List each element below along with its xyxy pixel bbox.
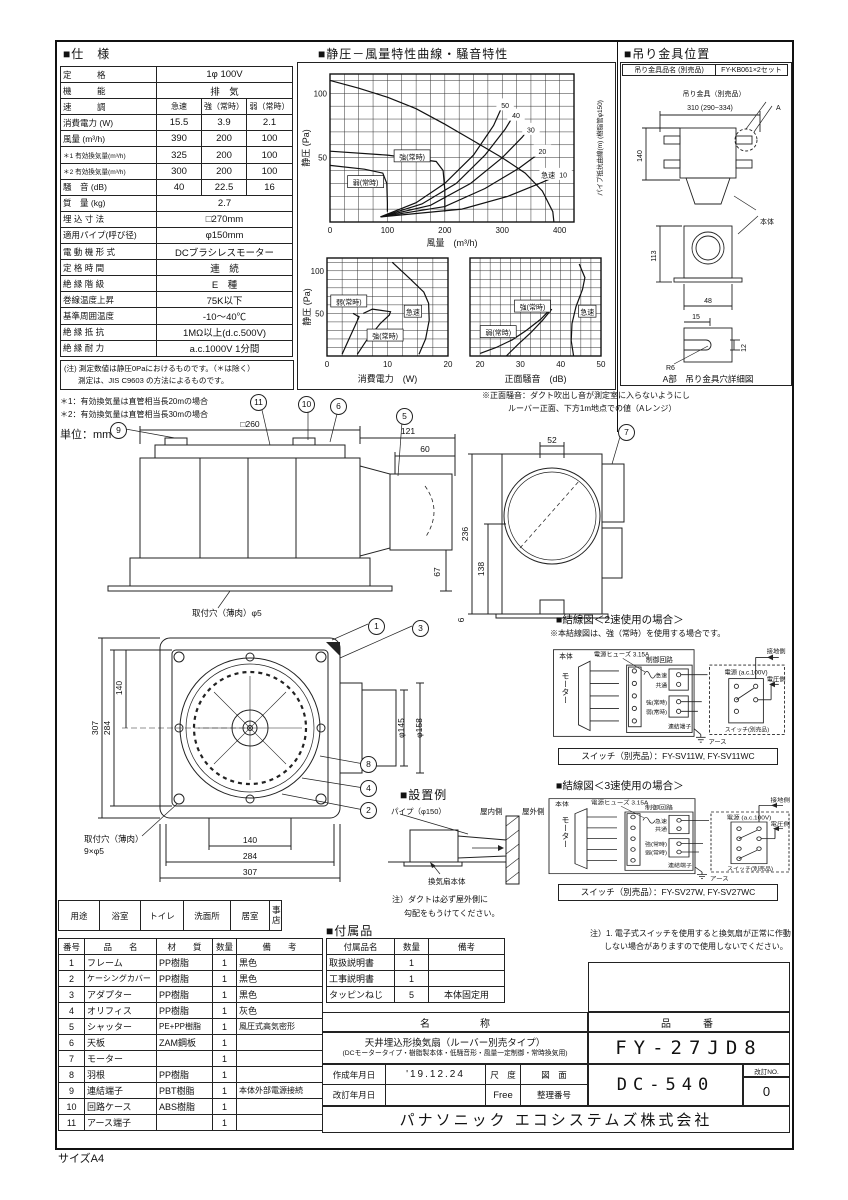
svg-text:正面騒音 (dB): 正面騒音 (dB) <box>504 373 566 384</box>
dim-r6: R6 <box>666 365 675 372</box>
balloon-2: 2 <box>360 802 377 819</box>
spec-row: 埋 込 寸 法□270mm <box>61 211 293 227</box>
parts-row: 7モーター1 <box>59 1051 323 1067</box>
spec-row: 巻線温度上昇75K以下 <box>61 292 293 308</box>
noise-note-1: ※正面騒音：ダクト吹出し音が測定室に入らないようにし <box>482 390 690 401</box>
spec-row: 絶 縁 抵 抗1MΩ以上(d.c.500V) <box>61 324 293 340</box>
balloon-9: 9 <box>110 422 127 439</box>
noise-note-2: ルーバー正面、下方1m地点での値（Aレンジ） <box>508 403 676 414</box>
svg-text:急速: 急速 <box>406 308 420 317</box>
svg-text:弱(常時): 弱(常時) <box>353 178 379 187</box>
svg-text:強(常時): 強(常時) <box>372 332 398 341</box>
w2-ground: 接地側 <box>767 647 786 656</box>
acc-row: 取扱説明書1 <box>327 955 505 971</box>
svg-text:強(常時): 強(常時) <box>520 303 546 312</box>
svg-text:200: 200 <box>438 226 452 235</box>
tb-revised-value <box>385 1084 486 1106</box>
svg-text:30: 30 <box>527 127 535 134</box>
acc-h-qty: 数量 <box>395 939 429 955</box>
parts-table: 番号 品 名 材 質 数量 備 考 1フレームPP樹脂1黒色 2ケーシングカバー… <box>58 938 323 1131</box>
parts-row: 3アダプターPP樹脂1黒色 <box>59 987 323 1003</box>
parts-row: 11アース端子1 <box>59 1115 323 1131</box>
balloon-5: 5 <box>396 408 413 425</box>
svg-text:50: 50 <box>315 309 324 318</box>
svg-text:0: 0 <box>328 226 333 235</box>
body-label: 本体 <box>760 217 774 226</box>
front-view-drawing: 52 236 138 6 <box>462 436 632 626</box>
wiring2-title: ■結線図＜2速使用の場合＞ <box>556 612 684 627</box>
noise-chart: 20304050弱(常時)強(常時)急速正面騒音 (dB) <box>456 252 609 384</box>
spec-row: ＊2 有効換気量(m³/h)300200100 <box>61 163 293 179</box>
w2-t1: 急速 <box>656 672 668 680</box>
w3-t2: 共通 <box>655 826 668 833</box>
balloon-6: 6 <box>330 398 347 415</box>
svg-text:100: 100 <box>314 89 328 98</box>
parts-row: 4オリフィスPP樹脂1灰色 <box>59 1003 323 1019</box>
spec-row: 機 能排 気 <box>61 83 293 99</box>
svg-text:弱(常時): 弱(常時) <box>485 328 511 337</box>
svg-text:急速: 急速 <box>541 170 555 179</box>
svg-text:強(常時): 強(常時) <box>399 152 425 161</box>
acc-row: タッピンねじ5本体固定用 <box>327 987 505 1003</box>
dim-52: 52 <box>547 435 557 445</box>
tb-name-header: 名 称 <box>322 1012 588 1032</box>
acc-h-rem: 備考 <box>429 939 505 955</box>
parts-row: 9連結端子PBT樹脂1本体外部電源接続 <box>59 1083 323 1099</box>
svg-text:50: 50 <box>318 154 327 163</box>
wiring3-title: ■結線図＜3速使用の場合＞ <box>556 778 684 793</box>
dim-236: 236 <box>460 527 470 541</box>
dim-260: □260 <box>240 419 260 429</box>
tb-seiri-label: 整理番号 <box>520 1084 588 1106</box>
spec-table: 定 格1φ 100V 機 能排 気 速 調急速強（常時）弱（常時） 消費電力 (… <box>60 66 293 357</box>
w3-switch: スイッチ(別売品) <box>727 865 773 872</box>
tb-drawing-no: DC-540 <box>588 1064 743 1106</box>
dim-48: 48 <box>704 298 712 305</box>
spec-row: 適用パイプ(呼び径)φ150mm <box>61 227 293 243</box>
usage-toilet: トイレ <box>141 901 184 931</box>
parts-h-name: 品 名 <box>85 939 157 955</box>
w3-note-2: しない場合がありますので使用しないでください。 <box>604 941 788 952</box>
spec-row: 定 格 時 間連 続 <box>61 260 293 276</box>
spec-row: ＊1 有効換気量(m³/h)325200100 <box>61 147 293 163</box>
chart-section-title: ■静圧－風量特性曲線・騒音特性 <box>318 45 508 62</box>
usage-header: 用途 <box>59 901 100 931</box>
hole-5-label: 取付穴（薄肉）φ5 <box>192 608 262 618</box>
dim-140-left: 140 <box>114 681 124 695</box>
tb-company: パナソニック エコシステムズ株式会社 <box>322 1106 790 1133</box>
tb-rev-label: 改訂NO. <box>743 1064 790 1077</box>
svg-text:100: 100 <box>381 226 395 235</box>
page-size-label: サイズA4 <box>58 1150 104 1166</box>
w2-t2: 共通 <box>656 681 668 689</box>
install-note-1: 注）ダクトは必ず屋外側に <box>392 894 488 905</box>
spec-row: 絶 縁 階 級E 種 <box>61 276 293 292</box>
w3-motor: モーター <box>560 816 571 848</box>
balloon-7: 7 <box>618 424 635 441</box>
w3-models: スイッチ（別売品）：FY-SV27W, FY-SV27WC <box>558 884 778 901</box>
svg-text:50: 50 <box>597 360 606 369</box>
install-indoor-label: 屋内側 <box>480 806 503 817</box>
dim-138: 138 <box>476 562 486 576</box>
tb-name-2: (DCモータータイプ・樹脂製本体・低騒音形・風量一定制御・常時換気用) <box>342 1050 567 1058</box>
install-pipe-label: パイプ（φ150） <box>391 806 446 817</box>
balloon-8: 8 <box>360 756 377 773</box>
hanger-label: 吊り金具（別売品） <box>683 89 746 98</box>
bracket-part-value: FY-KB061×2セット <box>716 65 788 76</box>
tb-name-cell: 天井埋込形換気扇（ルーバー別売タイプ） (DCモータータイプ・樹脂製本体・低騒音… <box>322 1032 588 1064</box>
w3-terminal: 連結端子 <box>668 862 692 869</box>
dim-284-left: 284 <box>102 721 112 735</box>
balloon-10: 10 <box>298 396 315 413</box>
parts-row: 6天板ZAM鋼板1 <box>59 1035 323 1051</box>
w3-control: 制御回路 <box>645 803 674 811</box>
parts-row: 8羽根PP樹脂1 <box>59 1067 323 1083</box>
svg-text:静圧 (Pa): 静圧 (Pa) <box>300 129 311 167</box>
side-view-drawing: □260 121 60 67 取付穴（薄肉）φ5 <box>80 416 460 626</box>
dim-67: 67 <box>432 567 442 577</box>
parts-h-mat: 材 質 <box>157 939 213 955</box>
parts-row: 2ケーシングカバーPP樹脂1黒色 <box>59 971 323 987</box>
bracket-drawing: 吊り金具（別売品） 310 (290~334) 140 A 本体 113 48 … <box>622 84 788 384</box>
tb-scale-value: Free <box>485 1084 521 1106</box>
spec-row: 定 格1φ 100V <box>61 67 293 83</box>
svg-text:10: 10 <box>383 360 392 369</box>
spec-row: 基準周囲温度-10～40℃ <box>61 308 293 324</box>
tb-name-1: 天井埋込形換気扇（ルーバー別売タイプ） <box>365 1038 545 1050</box>
spec-row: 絶 縁 耐 力a.c.1000V 1分間 <box>61 340 293 356</box>
svg-text:急速: 急速 <box>580 308 594 317</box>
svg-text:0: 0 <box>325 360 330 369</box>
w3-t3: 強(常時) <box>645 841 667 848</box>
spec-row: 速 調急速強（常時）弱（常時） <box>61 99 293 115</box>
dim-140-bracket: 140 <box>637 150 644 162</box>
w3-power: 電源 (a.c.100V) <box>727 814 772 821</box>
w2-fuse: 電源ヒューズ 3.15A <box>594 649 650 658</box>
dim-145: φ145 <box>396 718 406 738</box>
w2-models: スイッチ（別売品）：FY-SV11W, FY-SV11WC <box>558 748 778 765</box>
svg-text:30: 30 <box>516 360 525 369</box>
section-divider <box>617 40 618 432</box>
w2-terminal: 連結端子 <box>668 723 691 731</box>
wiring3-diagram: 本体 電源ヒューズ 3.15A 制御回路 急速 共通 強(常時) 弱(常時) 連… <box>547 792 792 882</box>
dim-121: 121 <box>401 426 415 436</box>
spec-note-2: 測定は、JIS C9603 の方法によるものです。 <box>64 375 290 387</box>
bracket-part-label: 吊り金具品名 (別売品) <box>623 65 716 76</box>
balloon-4: 4 <box>360 780 377 797</box>
dim-310: 310 (290~334) <box>687 105 733 112</box>
svg-text:10: 10 <box>559 172 567 179</box>
balloon-1: 1 <box>368 618 385 635</box>
parts-row: 10回路ケースABS樹脂1 <box>59 1099 323 1115</box>
spec-title: ■仕 様 <box>63 45 110 62</box>
svg-text:弱(常時): 弱(常時) <box>336 297 362 306</box>
tb-created-value: '19.12.24 <box>385 1064 486 1085</box>
svg-text:20: 20 <box>444 360 453 369</box>
dim-158: φ158 <box>414 718 424 738</box>
w2-power: 電源 (a.c.100V) <box>725 668 768 677</box>
spec-row: 騒 音 (dB)4022.516 <box>61 179 293 195</box>
dim-113: 113 <box>651 250 658 261</box>
w2-control: 制御回路 <box>646 655 673 664</box>
parts-row: 5シャッターPE+PP樹脂1風圧式高気密形 <box>59 1019 323 1035</box>
w3-body: 本体 <box>555 800 570 808</box>
w2-t4: 弱(常時) <box>646 708 667 716</box>
acc-h-name: 付属品名 <box>327 939 395 955</box>
power-chart: 0102050100弱(常時)強(常時)急速消費電力 (W)静圧 (Pa) <box>301 252 454 384</box>
pq-chart: 0100200300400501005040302010急速強(常時)弱(常時)… <box>300 66 610 248</box>
accessories-title: ■付属品 <box>326 922 373 939</box>
usage-washroom: 洗面所 <box>184 901 231 931</box>
usage-table: 用途 浴室 トイレ 洗面所 居室 事務所店舗 <box>58 900 282 931</box>
parts-row: 1フレームPP樹脂1黒色 <box>59 955 323 971</box>
spec-row: 風量 (m³/h)390200100 <box>61 131 293 147</box>
w2-motor: モーター <box>560 672 571 704</box>
hole-9-label-1: 取付穴（薄肉） <box>84 834 144 844</box>
w3-t4: 弱(常時) <box>645 849 667 856</box>
install-outdoor-label: 屋外側 <box>522 806 545 817</box>
bracket-part-table: 吊り金具品名 (別売品) FY-KB061×2セット <box>622 64 788 76</box>
svg-text:400: 400 <box>553 226 567 235</box>
w3-fuse: 電源ヒューズ 3.15A <box>591 799 648 806</box>
tb-created-label: 作成年月日 <box>322 1064 386 1085</box>
mark-a: A <box>776 105 781 112</box>
w3-ground: 接地側 <box>771 797 790 804</box>
svg-text:20: 20 <box>539 149 547 156</box>
spec-row: 電 動 機 形 式DCブラシレスモーター <box>61 244 293 260</box>
hole-9-label-2: 9×φ5 <box>84 846 104 856</box>
dim-307-left: 307 <box>90 721 100 735</box>
spec-note-3: ＊1：有効換気量は直管相当長20mの場合 <box>60 396 208 407</box>
w2-t3: 強(常時) <box>646 699 667 707</box>
balloon-11: 11 <box>250 394 267 411</box>
svg-text:40: 40 <box>556 360 565 369</box>
datasheet-page: ■仕 様 定 格1φ 100V 機 能排 気 速 調急速強（常時）弱（常時） 消… <box>0 0 848 1200</box>
w2-switch: スイッチ(別売品) <box>725 726 769 734</box>
spec-note-1: (注) 測定数値は静圧0Paにおけるものです。（＊は除く） <box>64 363 290 375</box>
spec-row: 消費電力 (W)15.53.92.1 <box>61 115 293 131</box>
titleblock-empty-box <box>588 962 790 1012</box>
tb-hinban-header: 品 番 <box>588 1012 790 1032</box>
spec-note-box: (注) 測定数値は静圧0Paにおけるものです。（＊は除く） 測定は、JIS C9… <box>60 360 294 390</box>
wiring2-note: ※本結線図は、強（常時）を使用する場合です。 <box>550 628 725 639</box>
svg-text:100: 100 <box>311 267 325 276</box>
svg-text:300: 300 <box>496 226 510 235</box>
w2-volt: 電圧側 <box>767 675 786 683</box>
usage-livingroom: 居室 <box>231 901 270 931</box>
w3-t1: 急速 <box>655 817 668 824</box>
dim-307-bottom: 307 <box>243 867 257 877</box>
w2-earth: アース <box>709 738 727 746</box>
acc-row: 工事説明書1 <box>327 971 505 987</box>
parts-h-rem: 備 考 <box>237 939 323 955</box>
svg-text:パイプ抵抗曲線(m) (樹脂管φ150): パイプ抵抗曲線(m) (樹脂管φ150) <box>595 100 604 196</box>
w3-note-1: 注）1. 電子式スイッチを使用すると換気扇が正常に作動 <box>590 928 791 939</box>
bracket-title: ■吊り金具位置 <box>624 45 710 62</box>
install-note-2: 勾配をもうけてください。 <box>404 908 500 919</box>
usage-office: 事務所店舗 <box>270 901 282 931</box>
spec-row: 質 量 (kg)2.7 <box>61 195 293 211</box>
dim-15: 15 <box>692 314 700 321</box>
parts-h-qty: 数量 <box>213 939 237 955</box>
dim-60: 60 <box>420 444 430 454</box>
install-body-label: 換気扇本体 <box>428 876 466 887</box>
svg-text:静圧 (Pa): 静圧 (Pa) <box>301 288 312 326</box>
wiring2-diagram: 本体 電源ヒューズ 3.15A 制御回路 急速 共通 強(常時) 弱(常時) 連… <box>547 642 792 746</box>
svg-text:風量 (m³/h): 風量 (m³/h) <box>427 238 478 248</box>
usage-bath: 浴室 <box>100 901 141 931</box>
dim-6: 6 <box>456 617 466 622</box>
tb-scale-label: 尺 度 <box>485 1064 521 1085</box>
svg-text:20: 20 <box>476 360 485 369</box>
svg-text:40: 40 <box>512 113 520 120</box>
bracket-caption: A部 吊り金具穴詳細図 <box>663 374 754 384</box>
tb-zumen-label: 図 面 <box>520 1064 588 1085</box>
w2-body: 本体 <box>559 651 573 660</box>
dim-12: 12 <box>741 344 748 352</box>
dim-284-bottom: 284 <box>243 851 257 861</box>
parts-h-no: 番号 <box>59 939 85 955</box>
tb-model: FY-27JD8 <box>588 1032 790 1064</box>
dim-140-bottom: 140 <box>243 835 257 845</box>
balloon-3: 3 <box>412 620 429 637</box>
accessories-table: 付属品名 数量 備考 取扱説明書1 工事説明書1 タッピンねじ5本体固定用 <box>326 938 505 1003</box>
tb-revised-label: 改訂年月日 <box>322 1084 386 1106</box>
w3-earth: アース <box>710 876 729 882</box>
w3-volt: 電圧側 <box>771 821 790 828</box>
svg-text:消費電力 (W): 消費電力 (W) <box>358 373 418 384</box>
tb-rev-value: 0 <box>743 1077 790 1106</box>
